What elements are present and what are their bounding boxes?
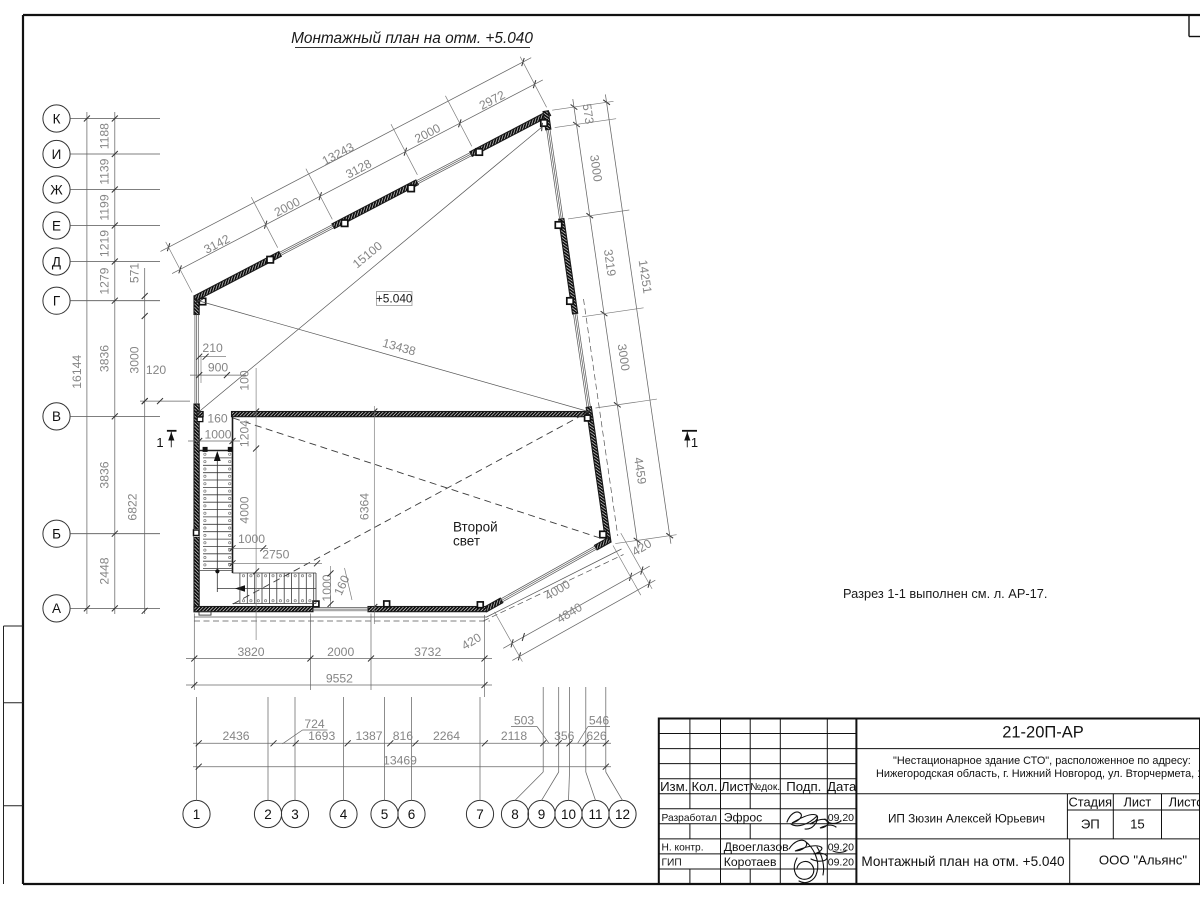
svg-text:3: 3 xyxy=(291,807,299,822)
svg-text:1000: 1000 xyxy=(204,428,231,442)
svg-text:Е: Е xyxy=(52,218,61,233)
svg-text:2750: 2750 xyxy=(262,548,289,562)
svg-text:356: 356 xyxy=(554,729,575,743)
svg-text:1387: 1387 xyxy=(355,729,382,743)
svg-text:1: 1 xyxy=(691,435,698,450)
svg-text:Лист: Лист xyxy=(721,779,750,794)
svg-text:А: А xyxy=(52,601,61,616)
svg-text:1199: 1199 xyxy=(98,194,112,220)
svg-text:И: И xyxy=(52,147,62,162)
svg-text:2118: 2118 xyxy=(501,729,527,743)
svg-text:Монтажный план на отм. +5.040: Монтажный план на отм. +5.040 xyxy=(861,854,1065,869)
svg-text:900: 900 xyxy=(208,361,229,375)
svg-text:2: 2 xyxy=(264,807,272,822)
svg-text:3820: 3820 xyxy=(237,645,264,659)
svg-text:210: 210 xyxy=(202,341,223,355)
svg-text:Г: Г xyxy=(53,294,61,309)
svg-text:Кол.: Кол. xyxy=(691,779,717,794)
svg-text:Б: Б xyxy=(52,527,61,542)
svg-text:6364: 6364 xyxy=(358,493,372,520)
svg-text:3836: 3836 xyxy=(98,345,112,372)
svg-text:Н. контр.: Н. контр. xyxy=(662,842,704,853)
svg-text:16144: 16144 xyxy=(70,355,84,389)
svg-text:120: 120 xyxy=(146,363,167,377)
svg-text:Ж: Ж xyxy=(50,182,63,197)
svg-text:503: 503 xyxy=(514,714,535,728)
svg-text:Двоеглазов: Двоеглазов xyxy=(724,840,789,854)
svg-text:Листо: Листо xyxy=(1169,794,1200,809)
svg-text:1219: 1219 xyxy=(98,230,112,257)
svg-text:3836: 3836 xyxy=(98,461,112,488)
svg-text:Монтажный план на отм. +5.040: Монтажный план на отм. +5.040 xyxy=(291,30,533,47)
svg-text:Лист: Лист xyxy=(1123,794,1151,809)
svg-text:3000: 3000 xyxy=(128,346,142,373)
svg-text:4: 4 xyxy=(340,807,348,822)
svg-text:571: 571 xyxy=(128,263,142,284)
svg-text:9: 9 xyxy=(538,807,546,822)
svg-text:Второй: Второй xyxy=(453,520,498,535)
svg-text:Подп.: Подп. xyxy=(786,779,821,794)
svg-text:Дата: Дата xyxy=(827,779,857,794)
svg-text:ГИП: ГИП xyxy=(662,858,682,869)
svg-text:Д: Д xyxy=(52,254,61,269)
svg-text:2000: 2000 xyxy=(327,645,354,659)
svg-text:+5.040: +5.040 xyxy=(376,292,413,306)
svg-text:09.20: 09.20 xyxy=(828,857,854,869)
svg-text:11: 11 xyxy=(588,807,602,822)
svg-text:4000: 4000 xyxy=(237,496,251,523)
svg-text:1000: 1000 xyxy=(238,532,265,546)
svg-text:12: 12 xyxy=(615,807,630,822)
svg-text:1693: 1693 xyxy=(308,729,335,743)
svg-text:09.20: 09.20 xyxy=(828,842,854,854)
svg-text:13469: 13469 xyxy=(383,754,417,768)
svg-text:Изм.: Изм. xyxy=(660,779,688,794)
svg-text:Разработал: Разработал xyxy=(662,812,718,824)
svg-text:2264: 2264 xyxy=(433,729,460,743)
svg-text:2448: 2448 xyxy=(98,557,112,584)
svg-text:1279: 1279 xyxy=(98,267,112,294)
svg-text:6: 6 xyxy=(408,807,416,822)
svg-text:1: 1 xyxy=(193,807,201,822)
svg-text:№док.: №док. xyxy=(750,782,780,793)
svg-text:К: К xyxy=(53,111,61,126)
svg-text:ЭП: ЭП xyxy=(1081,816,1100,831)
svg-text:3732: 3732 xyxy=(414,645,441,659)
svg-text:1139: 1139 xyxy=(98,158,112,184)
svg-text:Коротаев: Коротаев xyxy=(724,855,777,869)
svg-text:"Нестационарное здание СТО", р: "Нестационарное здание СТО", расположенн… xyxy=(893,755,1191,767)
svg-text:1204: 1204 xyxy=(237,420,251,447)
svg-text:В: В xyxy=(52,409,61,424)
svg-text:6822: 6822 xyxy=(126,493,140,520)
svg-text:свет: свет xyxy=(453,533,480,548)
svg-text:Нижегородская область, г. Нижн: Нижегородская область, г. Нижний Новгоро… xyxy=(876,768,1200,780)
svg-text:Эфрос: Эфрос xyxy=(724,810,762,824)
svg-text:816: 816 xyxy=(393,729,414,743)
svg-text:546: 546 xyxy=(589,714,610,728)
svg-text:10: 10 xyxy=(561,807,576,822)
svg-text:09.20: 09.20 xyxy=(828,812,854,824)
svg-text:1: 1 xyxy=(156,435,163,450)
svg-text:9552: 9552 xyxy=(326,671,353,685)
svg-text:160: 160 xyxy=(207,412,228,426)
svg-text:7: 7 xyxy=(476,807,484,822)
svg-text:5: 5 xyxy=(381,807,389,822)
svg-text:21-20П-АР: 21-20П-АР xyxy=(1002,723,1084,741)
svg-text:1188: 1188 xyxy=(98,123,112,149)
svg-text:Стадия: Стадия xyxy=(1068,794,1112,809)
svg-text:15: 15 xyxy=(1130,816,1145,831)
svg-text:ООО "Альянс": ООО "Альянс" xyxy=(1099,853,1187,868)
svg-text:ИП Зюзин Алексей Юрьевич: ИП Зюзин Алексей Юрьевич xyxy=(888,812,1045,826)
svg-text:Разрез 1-1 выполнен см. л. АР-: Разрез 1-1 выполнен см. л. АР-17. xyxy=(843,586,1047,601)
svg-text:100: 100 xyxy=(237,370,251,391)
svg-text:626: 626 xyxy=(586,729,607,743)
svg-text:8: 8 xyxy=(511,807,519,822)
svg-text:2436: 2436 xyxy=(222,729,249,743)
svg-text:724: 724 xyxy=(304,717,325,731)
